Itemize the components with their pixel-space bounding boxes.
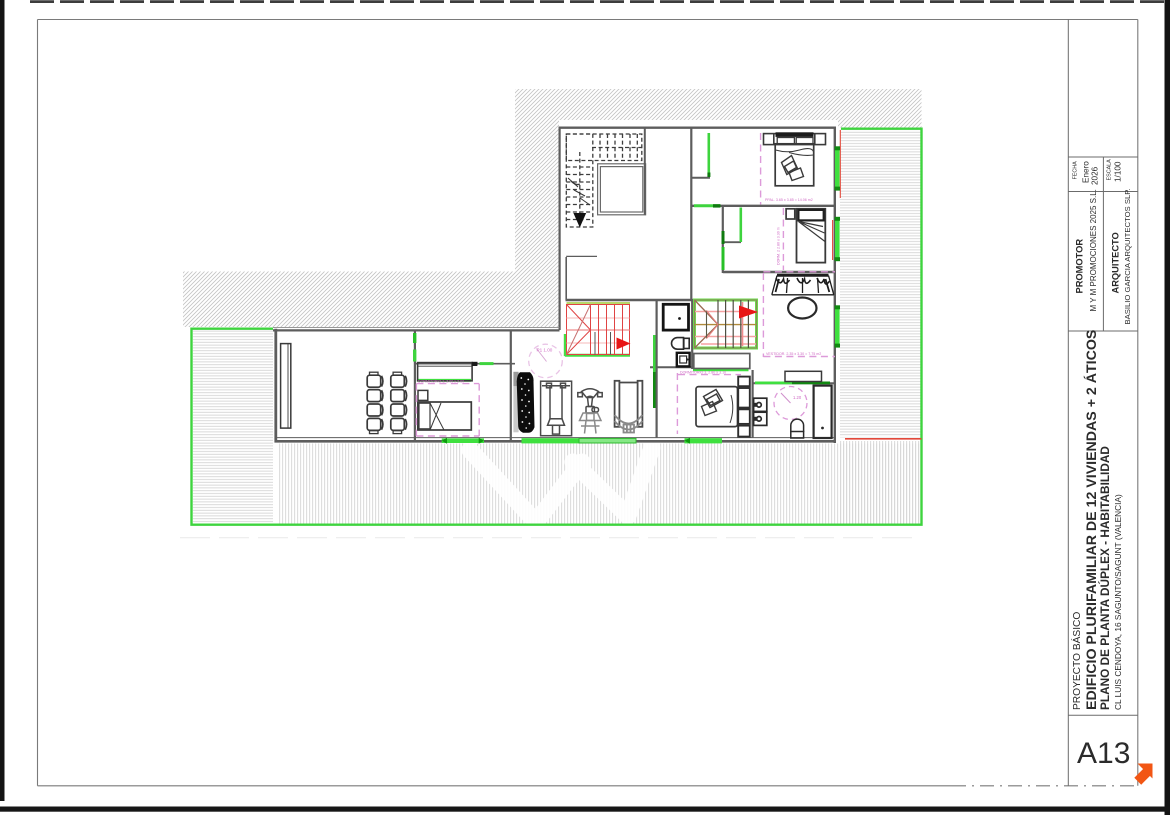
svg-text:PROYECTO BÁSICO: PROYECTO BÁSICO bbox=[1070, 612, 1083, 710]
svg-text:VESTIDOR. 2.35 x 3.30 = 7.75 m: VESTIDOR. 2.35 x 3.30 = 7.75 m2 bbox=[766, 352, 821, 356]
svg-text:FECHA: FECHA bbox=[1073, 161, 1079, 180]
svg-text:DORMITORIO 1. 3.00 x 2.60: DORMITORIO 1. 3.00 x 2.60 bbox=[418, 379, 464, 383]
svg-text:ESCALA: ESCALA bbox=[1107, 159, 1113, 181]
svg-text:PROMOTOR: PROMOTOR bbox=[1075, 239, 1085, 294]
svg-text:PPAL. 3.65 x 3.85 = 14.06 m2: PPAL. 3.65 x 3.85 = 14.06 m2 bbox=[765, 198, 813, 202]
svg-text:PLANO DE PLANTA DÚPLEX - HABIT: PLANO DE PLANTA DÚPLEX - HABITABILIDAD bbox=[1098, 446, 1112, 710]
svg-text:DORM. 2 2.80 x 3.30 m: DORM. 2 2.80 x 3.30 m bbox=[777, 227, 781, 265]
svg-text:ARQUITECTO: ARQUITECTO bbox=[1111, 232, 1121, 293]
svg-text:1.20: 1.20 bbox=[793, 395, 802, 400]
svg-text:M Y M PROMOCIONES 2025 S.L.: M Y M PROMOCIONES 2025 S.L. bbox=[1089, 189, 1098, 311]
svg-text:2026: 2026 bbox=[1091, 166, 1100, 185]
svg-text:P1 1.00: P1 1.00 bbox=[537, 348, 553, 353]
svg-text:A13: A13 bbox=[1077, 737, 1130, 770]
svg-text:BASILIO GARCIA ARQUITECTOS SLP: BASILIO GARCIA ARQUITECTOS SLP. bbox=[1123, 189, 1132, 325]
svg-text:Enero: Enero bbox=[1082, 161, 1091, 183]
svg-text:DORMITORIO 3. 2.80 x 3.10: DORMITORIO 3. 2.80 x 3.10 bbox=[680, 370, 726, 374]
svg-text:CL LUIS CENDOYA, 16 SAGUNTO/SA: CL LUIS CENDOYA, 16 SAGUNTO/SAGUNT (VALE… bbox=[1113, 494, 1123, 710]
svg-text:1/100: 1/100 bbox=[1114, 161, 1123, 182]
